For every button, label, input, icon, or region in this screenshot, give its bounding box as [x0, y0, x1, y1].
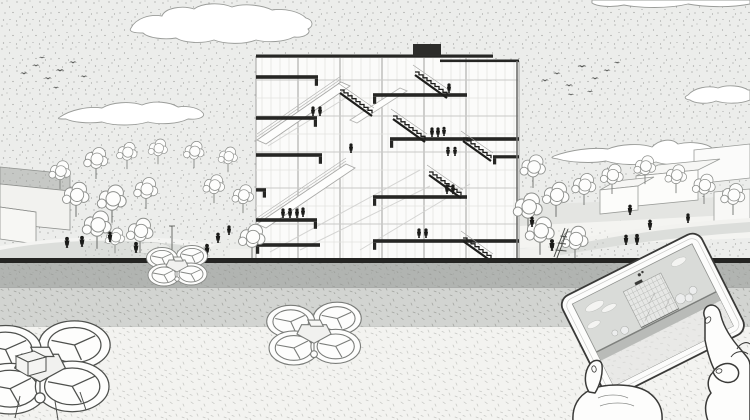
- illustration-canvas: [0, 0, 750, 420]
- cloud-top-right-sliver: [592, 0, 750, 8]
- drone-large: [0, 321, 110, 420]
- building-parapet: [256, 55, 493, 58]
- rooftop-unit: [413, 44, 441, 56]
- building-section: [256, 44, 519, 261]
- architectural-illustration: [0, 0, 750, 420]
- building-parapet-right: [440, 60, 519, 63]
